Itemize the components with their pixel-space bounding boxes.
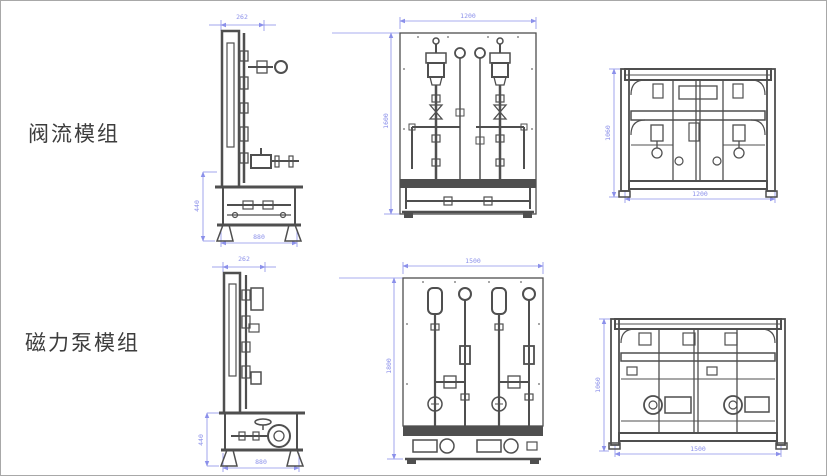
line-art xyxy=(400,33,536,218)
line-art xyxy=(215,31,303,241)
valve-module-side-view: 262 440 880 xyxy=(187,9,319,251)
dim-top: 262 xyxy=(236,14,248,21)
dim-left: 1800 xyxy=(386,358,393,374)
drawing-sheet: 阀流模组 xyxy=(0,0,827,476)
dim-bottom: 880 xyxy=(255,459,267,466)
valve-module-front-view: 1200 1600 xyxy=(384,9,548,221)
dimension-lines xyxy=(599,319,781,457)
dim-top: 1200 xyxy=(460,13,476,20)
dim-left: 1060 xyxy=(605,125,612,141)
dim-left: 440 xyxy=(194,200,201,212)
dim-top: 1500 xyxy=(465,258,481,265)
valve-module-side-view-drawing xyxy=(187,9,319,251)
dim-bottom: 1500 xyxy=(690,446,706,453)
valve-module-rear-view-drawing xyxy=(609,59,787,207)
valve-module-front-view-drawing xyxy=(384,9,548,221)
dim-bottom: 1200 xyxy=(692,191,708,198)
dim-left: 1600 xyxy=(383,113,390,129)
line-art xyxy=(403,278,543,464)
pump-module-rear-view: 1060 1500 xyxy=(599,309,797,461)
module-label-valve-flow: 阀流模组 xyxy=(28,118,120,148)
valve-module-rear-view: 1060 1200 xyxy=(609,59,787,207)
line-art xyxy=(619,69,777,197)
pump-module-side-view: 262 440 880 xyxy=(193,254,319,471)
pump-module-side-view-drawing xyxy=(193,254,319,471)
dim-left: 1060 xyxy=(595,377,602,393)
pump-module-front-view-drawing xyxy=(389,254,557,466)
line-art xyxy=(609,319,787,449)
module-label-magnetic-pump: 磁力泵模组 xyxy=(25,327,140,357)
pump-module-front-view: 1500 1800 xyxy=(389,254,557,466)
dimension-lines xyxy=(609,69,775,203)
dim-top: 262 xyxy=(238,256,250,263)
pump-module-rear-view-drawing xyxy=(599,309,797,461)
dim-bottom: 880 xyxy=(253,234,265,241)
line-art xyxy=(219,273,305,466)
dim-left: 440 xyxy=(198,434,205,446)
